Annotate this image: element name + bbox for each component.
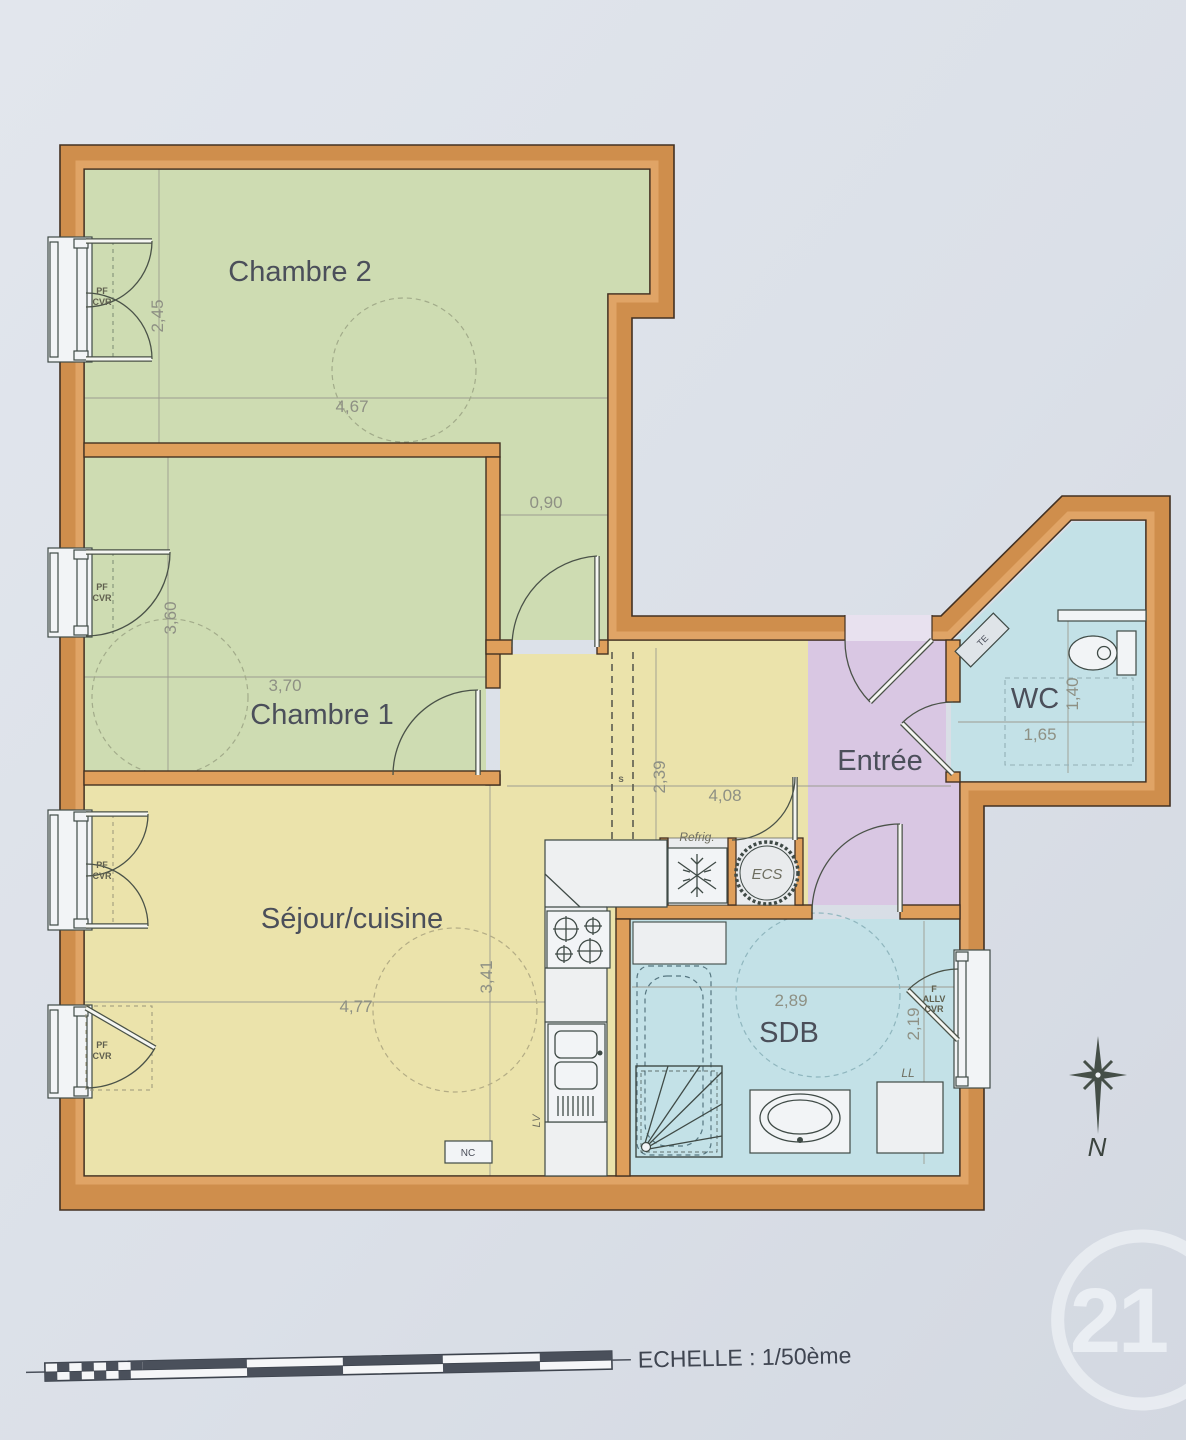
dim-sdb-height: 2,19 [904,1007,923,1040]
window3-cvr-label: CVR [92,871,112,881]
dim-chambre2-height: 2,45 [148,299,167,332]
dim-chambre2-passage: 0,90 [529,493,562,512]
window5-cvr-label: CVR [924,1004,944,1014]
compass-north-label: N [1088,1132,1107,1162]
dim-chambre2-width: 4,67 [335,397,368,416]
floorplan-drawing: Chambre 2 Chambre 1 Séjour/cuisine Entré… [0,0,1186,1440]
entree-label: Entrée [837,745,922,777]
dim-chambre1-height: 3,60 [161,601,180,634]
fridge-label: Refrig. [679,830,714,844]
dim-couloir-width: 4,08 [708,786,741,805]
window1-cvr-label: CVR [92,297,112,307]
dim-sejour-height: 3,41 [477,960,496,993]
sdb-cabinet [633,922,726,964]
window4-pf-label: PF [96,1040,108,1050]
washing-machine-label: LL [901,1066,914,1080]
washing-machine-icon [877,1082,943,1153]
chambre1-label: Chambre 1 [250,699,393,731]
fridge-icon [668,848,727,903]
entrance-opening [845,615,932,641]
dim-chambre1-width: 3,70 [268,676,301,695]
dim-couloir-height: 2,39 [650,760,669,793]
sdb-label: SDB [759,1017,819,1049]
nc-label: NC [461,1148,475,1159]
window1-pf-label: PF [96,286,108,296]
window2-cvr-label: CVR [92,593,112,603]
window5-allv-label: ALLV [923,994,946,1004]
dim-wc-width: 1,65 [1023,725,1056,744]
window5-f-label: F [931,984,937,994]
floorplan-page: Chambre 2 Chambre 1 Séjour/cuisine Entré… [0,0,1186,1440]
sejour-cuisine-label: Séjour/cuisine [261,903,443,935]
dim-wc-height: 1,40 [1063,677,1082,710]
kitchen-sink-icon [548,1024,605,1122]
wc-label: WC [1011,683,1059,715]
washbasin-icon [750,1090,850,1153]
century21-number: 21 [1070,1270,1167,1372]
window4-cvr-label: CVR [92,1051,112,1061]
chambre2-label: Chambre 2 [228,256,371,288]
dim-sejour-width: 4,77 [339,997,372,1016]
cooktop-icon [547,911,610,968]
dim-sdb-width: 2,89 [774,991,807,1010]
soffit-label: s [618,774,624,785]
dishwasher-label: LV [531,1113,543,1128]
window2-pf-label: PF [96,582,108,592]
window3-pf-label: PF [96,860,108,870]
water-heater-label: ECS [752,866,783,883]
scale-text: ECHELLE : 1/50ème [638,1342,852,1372]
